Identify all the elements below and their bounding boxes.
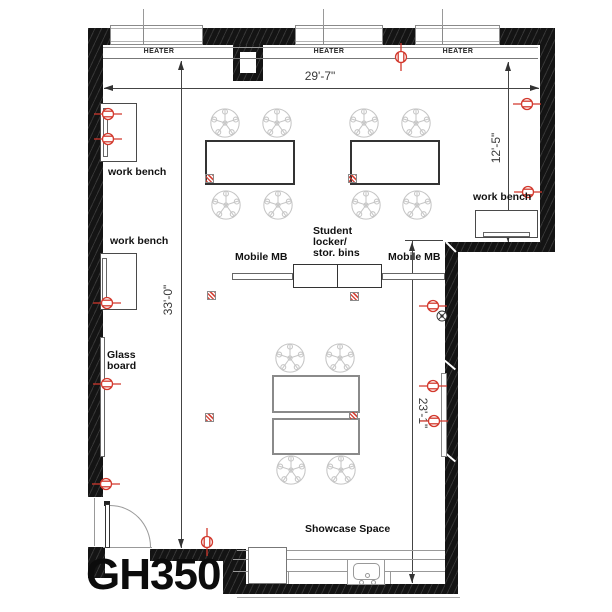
showcase-space-label: Showcase Space <box>305 524 390 535</box>
window-mullion <box>143 25 144 45</box>
chair-icon <box>324 453 358 487</box>
duplex-receptacle-icon <box>513 96 541 112</box>
wall-bottom <box>233 584 458 594</box>
floor-power-box-icon <box>350 292 359 301</box>
work-bench-label: work bench <box>110 236 168 247</box>
window-centerline <box>323 9 324 26</box>
duplex-receptacle-icon <box>93 376 121 392</box>
duplex-receptacle-icon <box>92 476 120 492</box>
dim-line-right-lower <box>412 240 413 583</box>
arrow-up <box>409 242 415 251</box>
window <box>295 25 383 45</box>
duplex-receptacle-icon <box>393 43 409 71</box>
dim-line-top <box>104 88 539 89</box>
counter-divider <box>288 571 289 584</box>
window-mullion <box>323 25 324 45</box>
dim-ref-tick <box>405 240 443 241</box>
mobile-marker-board <box>232 273 293 280</box>
arrow-up <box>505 62 511 71</box>
mobile-mb-label: Mobile MB <box>235 252 288 263</box>
door-threshold <box>103 547 152 548</box>
student-locker-label: Student locker/ stor. bins <box>313 226 360 259</box>
chair-icon <box>347 106 381 140</box>
sidelight-glass <box>94 498 95 546</box>
floor-power-box-icon <box>348 174 357 183</box>
dim-line-left <box>181 61 182 548</box>
duplex-receptacle-icon <box>93 295 121 311</box>
chair-icon <box>261 188 295 222</box>
wall-notch <box>445 242 555 252</box>
duplex-receptacle-icon <box>420 413 448 429</box>
dim-text-top: 29'-7" <box>290 69 350 83</box>
chair-icon <box>260 106 294 140</box>
floor-power-box-icon <box>205 174 214 183</box>
chair-icon <box>274 453 308 487</box>
sink-faucet <box>365 573 370 578</box>
bench-edge <box>483 232 530 237</box>
glass-board-label-line2: board <box>107 360 136 372</box>
chair-icon <box>400 188 434 222</box>
chair-icon <box>399 106 433 140</box>
mobile-marker-board <box>382 273 445 280</box>
sink-knob <box>371 580 376 585</box>
student-locker-label-line3: stor. bins <box>313 247 360 259</box>
heater-label: HEATER <box>136 48 182 55</box>
wall-outer-edge-line <box>237 597 460 598</box>
work-bench-label: work bench <box>473 192 531 203</box>
chair-icon <box>323 341 357 375</box>
door-swing-arc <box>110 505 151 547</box>
arrow-down <box>178 539 184 548</box>
heater-label: HEATER <box>435 48 481 55</box>
arrow-right <box>530 85 539 91</box>
glass-board <box>100 337 105 457</box>
chair-icon <box>209 188 243 222</box>
arrow-down <box>409 574 415 583</box>
locker-divider <box>337 264 338 288</box>
table <box>350 140 440 185</box>
duplex-receptacle-icon <box>94 106 122 122</box>
chair-icon <box>349 188 383 222</box>
floor-power-box-icon <box>349 411 358 420</box>
table <box>205 140 295 185</box>
counter-divider <box>390 571 391 584</box>
window-mullion <box>442 25 443 45</box>
chair-icon <box>208 106 242 140</box>
room-number: GH350 <box>86 551 220 599</box>
glass-board-label: Glass board <box>107 350 136 372</box>
window <box>415 25 500 45</box>
heater-label: HEATER <box>306 48 352 55</box>
wall-right-upper <box>540 28 555 252</box>
dim-text-left: 33'-0" <box>161 270 175 330</box>
duplex-receptacle-icon <box>94 131 122 147</box>
table <box>272 375 360 413</box>
arrow-left <box>104 85 113 91</box>
cabinet <box>248 547 287 584</box>
window-centerline <box>442 9 443 26</box>
window-centerline <box>143 9 144 26</box>
junction-box-icon <box>435 309 449 323</box>
chair-icon <box>273 341 307 375</box>
table <box>272 418 360 455</box>
arrow-up <box>178 61 184 70</box>
sink-knob <box>359 580 364 585</box>
mobile-mb-label: Mobile MB <box>388 252 441 263</box>
work-bench-label: work bench <box>108 167 166 178</box>
duplex-receptacle-icon <box>419 378 447 394</box>
dim-text-right-upper: 12'-5" <box>489 118 503 178</box>
floor-power-box-icon <box>207 291 216 300</box>
window <box>110 25 203 45</box>
floor-power-box-icon <box>205 413 214 422</box>
floor-plan: HEATER HEATER HEATER 29'-7" 33'-0" 12'-5… <box>0 0 612 612</box>
